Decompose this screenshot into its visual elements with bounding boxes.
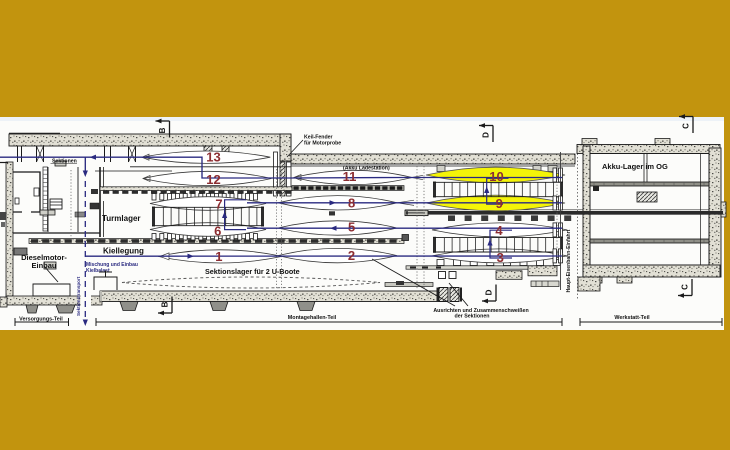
svg-text:7: 7 [215,196,222,211]
svg-text:4: 4 [495,223,503,238]
svg-text:Werkstatt-Teil: Werkstatt-Teil [614,315,650,321]
svg-text:3: 3 [497,250,504,265]
svg-text:12: 12 [206,172,220,187]
svg-text:D: D [481,132,490,138]
svg-text:für Motorprobe: für Motorprobe [304,141,341,147]
svg-text:der Sektionen: der Sektionen [454,314,489,320]
svg-text:Einbau: Einbau [31,261,56,270]
svg-text:10: 10 [489,169,503,184]
svg-text:2: 2 [348,248,355,263]
svg-text:Versorgungs-Teil: Versorgungs-Teil [19,317,63,323]
svg-text:B: B [158,127,167,133]
svg-text:C: C [681,123,690,129]
svg-text:5: 5 [348,220,355,235]
svg-text:Turmlager: Turmlager [102,214,141,223]
svg-text:8: 8 [348,196,355,211]
svg-text:D: D [484,289,493,295]
svg-text:C: C [680,284,689,290]
svg-text:Akku-Lager im OG: Akku-Lager im OG [602,162,668,171]
svg-text:1: 1 [215,249,222,264]
svg-text:Kielbalast: Kielbalast [86,268,110,274]
svg-text:Montagehallen-Teil: Montagehallen-Teil [288,315,337,321]
svg-text:6: 6 [214,224,221,239]
svg-text:(Akku Ladestation): (Akku Ladestation) [343,166,390,172]
svg-text:Sektionslager für 2 U-Boote: Sektionslager für 2 U-Boote [205,267,300,276]
svg-text:Haupt-Eisenbahn-Einfahrt: Haupt-Eisenbahn-Einfahrt [566,229,572,292]
svg-text:Kiellegung: Kiellegung [103,247,144,256]
svg-text:9: 9 [496,196,503,211]
svg-text:Sektionstransport: Sektionstransport [76,276,81,316]
svg-text:13: 13 [206,150,220,165]
svg-text:B: B [160,301,169,307]
